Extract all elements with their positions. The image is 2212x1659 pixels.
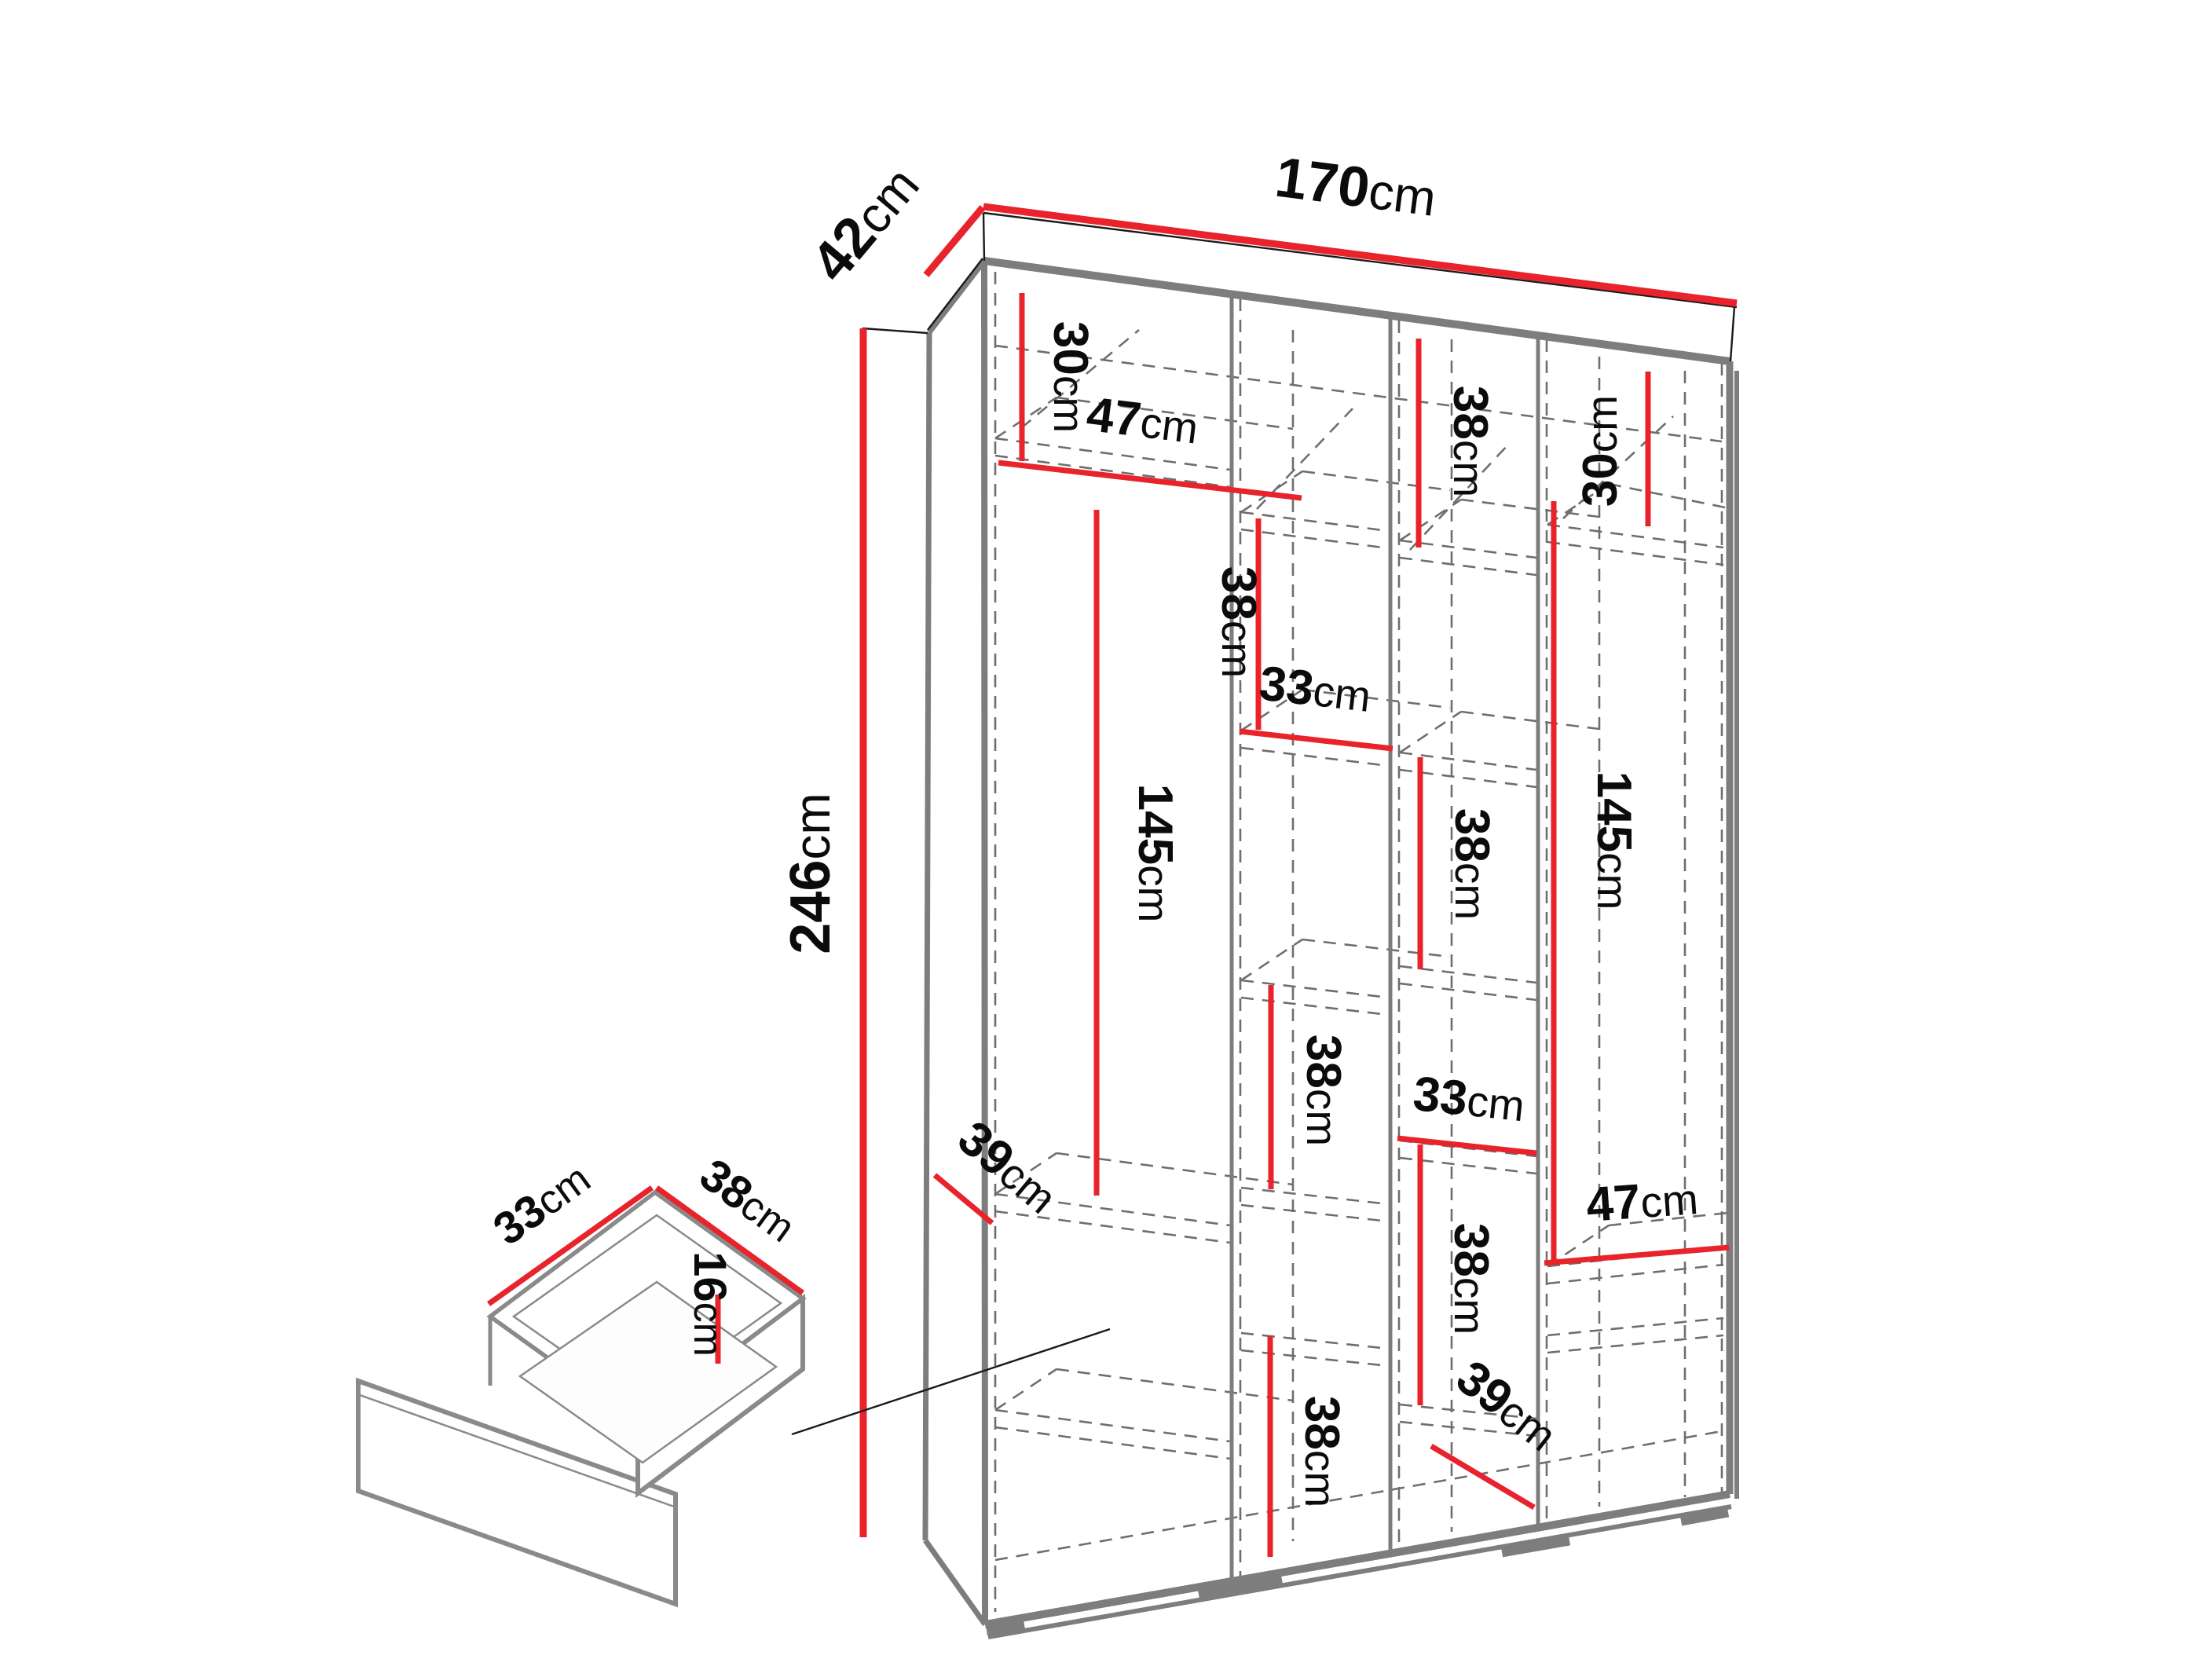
label-c3-lower: 38cm	[1444, 1223, 1498, 1335]
side-panel-face	[925, 261, 985, 1624]
label-depth-top: 42cm	[800, 154, 932, 294]
drawer-box	[358, 1192, 803, 1604]
label-c3-mid: 38cm	[1445, 808, 1499, 920]
label-c2-mid: 38cm	[1296, 1035, 1350, 1146]
label-c1-hang: 145cm	[1128, 784, 1182, 923]
label-c3-top: 38cm	[1443, 386, 1497, 497]
height-extension-line	[862, 328, 928, 333]
label-c2-bottom: 38cm	[1295, 1396, 1349, 1507]
label-drawer-height: 16cm	[684, 1251, 735, 1357]
label-c4-top: 30cm	[1573, 395, 1628, 507]
dimension-diagram: 170cm 42cm 246cm 30cm 47cm 145cm 39cm 38…	[0, 0, 2212, 1659]
left-front-edge	[984, 261, 985, 1624]
dim-line-depth-top	[926, 207, 983, 275]
label-width-top: 170cm	[1272, 145, 1440, 228]
label-c4-shelf: 47cm	[1584, 1170, 1700, 1232]
label-c4-hang: 145cm	[1587, 771, 1641, 910]
label-c2-upper: 38cm	[1211, 566, 1265, 678]
label-height-left: 246cm	[779, 793, 842, 954]
side-back-edge	[925, 332, 929, 1540]
